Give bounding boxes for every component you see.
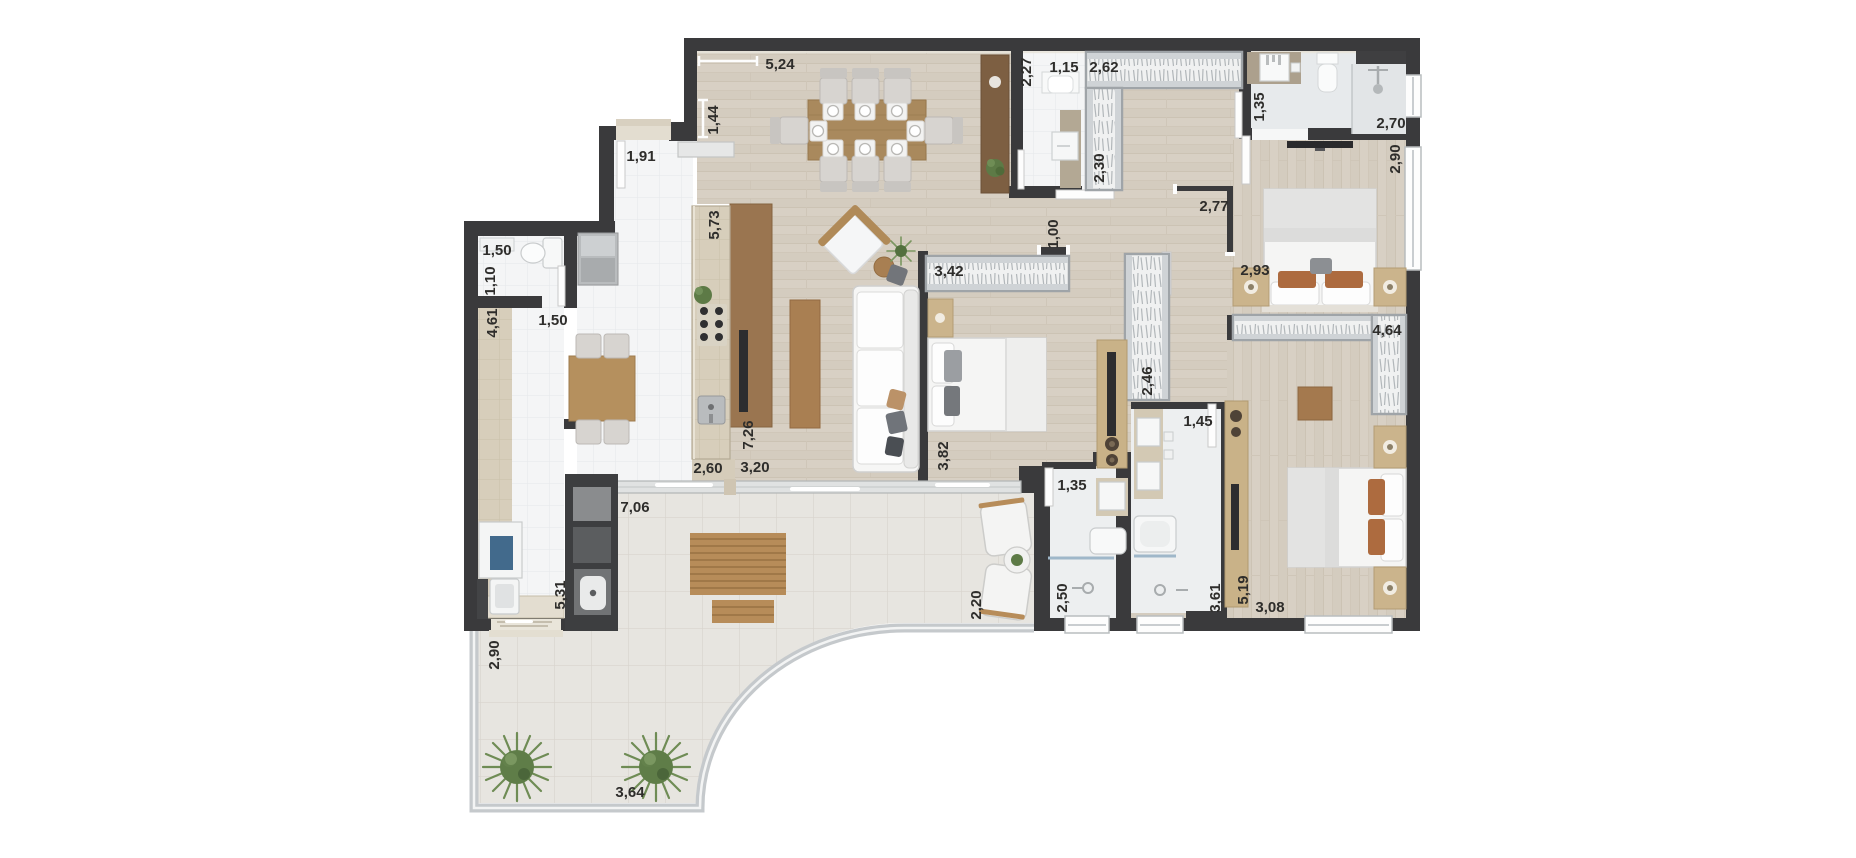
svg-text:5,31: 5,31 bbox=[552, 580, 569, 609]
svg-text:1,15: 1,15 bbox=[1049, 59, 1078, 76]
svg-text:2,62: 2,62 bbox=[1089, 59, 1118, 76]
svg-text:2,60: 2,60 bbox=[693, 460, 722, 477]
svg-text:1,50: 1,50 bbox=[538, 312, 567, 329]
svg-text:5,73: 5,73 bbox=[706, 210, 723, 239]
svg-text:1,35: 1,35 bbox=[1251, 92, 1268, 121]
svg-text:1,50: 1,50 bbox=[482, 242, 511, 259]
svg-text:4,61: 4,61 bbox=[484, 308, 501, 337]
svg-text:3,61: 3,61 bbox=[1207, 583, 1224, 612]
svg-text:3,42: 3,42 bbox=[934, 263, 963, 280]
svg-text:1,35: 1,35 bbox=[1057, 477, 1086, 494]
svg-text:4,64: 4,64 bbox=[1372, 322, 1402, 339]
svg-text:2,93: 2,93 bbox=[1240, 262, 1269, 279]
svg-text:3,20: 3,20 bbox=[740, 459, 769, 476]
svg-text:3,64: 3,64 bbox=[615, 784, 645, 801]
svg-text:5,24: 5,24 bbox=[765, 56, 795, 73]
svg-text:2,90: 2,90 bbox=[1387, 144, 1404, 173]
svg-text:7,06: 7,06 bbox=[620, 499, 649, 516]
svg-text:1,44: 1,44 bbox=[705, 105, 722, 135]
svg-text:2,30: 2,30 bbox=[1091, 153, 1108, 182]
svg-text:1,45: 1,45 bbox=[1183, 413, 1212, 430]
svg-text:1,10: 1,10 bbox=[482, 266, 499, 295]
svg-text:2,27: 2,27 bbox=[1018, 57, 1035, 86]
svg-text:2,77: 2,77 bbox=[1199, 198, 1228, 215]
svg-text:3,08: 3,08 bbox=[1255, 599, 1284, 616]
svg-text:3,82: 3,82 bbox=[935, 441, 952, 470]
svg-text:2,70: 2,70 bbox=[1376, 115, 1405, 132]
svg-text:1,00: 1,00 bbox=[1045, 219, 1062, 248]
svg-text:5,19: 5,19 bbox=[1235, 575, 1252, 604]
svg-text:7,26: 7,26 bbox=[740, 420, 757, 449]
svg-text:1,91: 1,91 bbox=[626, 148, 655, 165]
svg-text:2,50: 2,50 bbox=[1054, 583, 1071, 612]
svg-text:2,46: 2,46 bbox=[1139, 366, 1156, 395]
svg-text:2,20: 2,20 bbox=[968, 590, 985, 619]
svg-text:2,90: 2,90 bbox=[486, 640, 503, 669]
